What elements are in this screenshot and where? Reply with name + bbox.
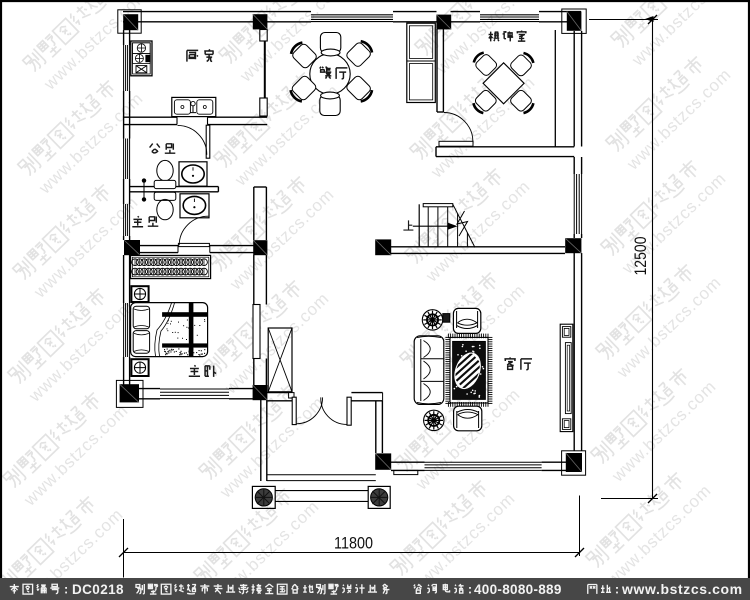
svg-text:11800: 11800: [334, 535, 373, 553]
svg-text:DC0218: DC0218: [72, 582, 124, 597]
svg-text:400-8080-889: 400-8080-889: [474, 582, 562, 597]
svg-text:www.bstzcs.com: www.bstzcs.com: [621, 581, 743, 597]
svg-text:12500: 12500: [632, 237, 650, 276]
